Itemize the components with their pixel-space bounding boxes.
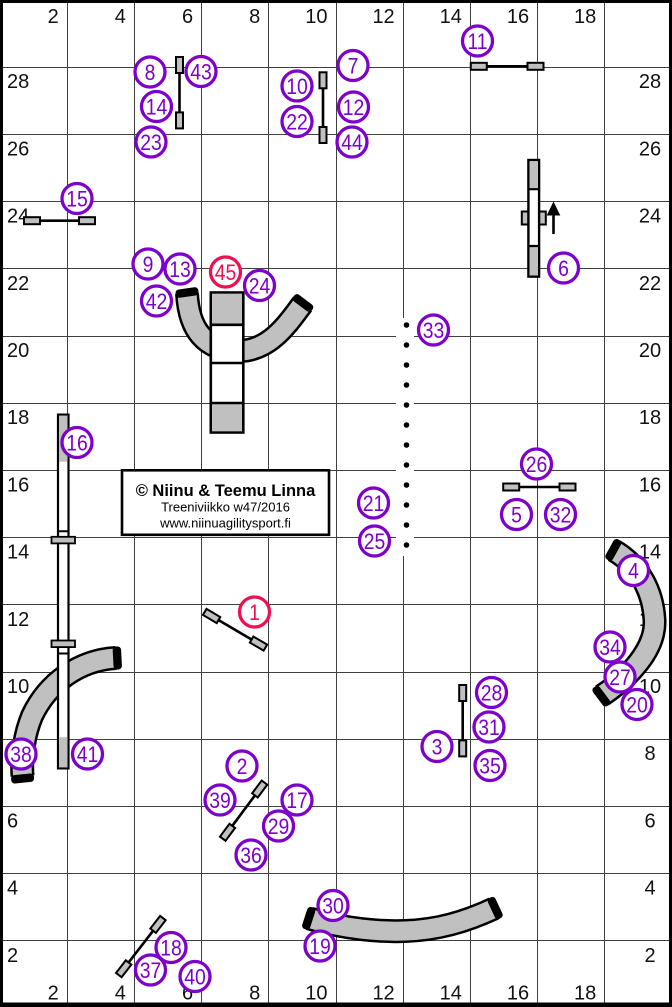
svg-text:4: 4 (115, 983, 126, 1005)
svg-text:9: 9 (143, 253, 154, 277)
svg-text:8: 8 (249, 6, 260, 28)
svg-text:3: 3 (432, 735, 443, 759)
svg-text:26: 26 (639, 138, 661, 160)
svg-text:34: 34 (599, 636, 621, 660)
svg-text:6: 6 (182, 6, 193, 28)
svg-text:22: 22 (286, 110, 308, 134)
svg-text:20: 20 (639, 340, 661, 362)
svg-text:11: 11 (467, 30, 487, 54)
svg-text:4: 4 (7, 878, 18, 900)
svg-text:17: 17 (286, 789, 308, 813)
svg-text:2: 2 (48, 6, 59, 28)
svg-text:28: 28 (639, 71, 661, 93)
svg-text:8: 8 (145, 61, 156, 85)
svg-text:www.niinuagilitysport.fi: www.niinuagilitysport.fi (159, 516, 291, 531)
svg-text:20: 20 (7, 340, 29, 362)
svg-text:10: 10 (7, 676, 29, 698)
svg-text:Treeniviikko w47/2016: Treeniviikko w47/2016 (161, 500, 290, 515)
svg-text:12: 12 (372, 6, 394, 28)
svg-text:32: 32 (550, 503, 572, 527)
svg-text:22: 22 (7, 273, 29, 295)
svg-text:14: 14 (440, 983, 462, 1005)
svg-text:10: 10 (286, 75, 308, 99)
svg-text:16: 16 (639, 474, 661, 496)
svg-text:2: 2 (644, 945, 655, 967)
svg-text:45: 45 (215, 261, 237, 285)
svg-text:16: 16 (7, 474, 29, 496)
svg-text:19: 19 (309, 935, 331, 959)
svg-text:18: 18 (574, 6, 596, 28)
svg-text:36: 36 (240, 844, 262, 868)
svg-text:16: 16 (66, 431, 88, 455)
svg-text:37: 37 (140, 959, 162, 983)
svg-text:6: 6 (7, 810, 18, 832)
svg-text:26: 26 (7, 138, 29, 160)
svg-text:40: 40 (184, 965, 206, 989)
svg-text:41: 41 (77, 743, 99, 767)
svg-text:24: 24 (639, 206, 661, 228)
svg-text:21: 21 (363, 492, 385, 516)
svg-text:13: 13 (169, 258, 191, 282)
svg-text:12: 12 (7, 609, 29, 631)
svg-text:42: 42 (146, 290, 168, 314)
svg-text:31: 31 (478, 716, 500, 740)
svg-text:4: 4 (628, 559, 639, 583)
svg-text:35: 35 (479, 754, 501, 778)
svg-text:16: 16 (507, 6, 529, 28)
svg-text:12: 12 (343, 96, 365, 120)
svg-text:44: 44 (341, 131, 363, 155)
svg-text:10: 10 (305, 983, 327, 1005)
svg-text:2: 2 (48, 983, 59, 1005)
svg-text:38: 38 (10, 743, 32, 767)
svg-text:8: 8 (249, 983, 260, 1005)
svg-text:18: 18 (639, 407, 661, 429)
svg-text:1: 1 (249, 601, 260, 625)
svg-text:4: 4 (115, 6, 126, 28)
svg-text:27: 27 (609, 666, 631, 690)
svg-text:6: 6 (558, 257, 569, 281)
svg-text:18: 18 (574, 983, 596, 1005)
svg-text:10: 10 (305, 6, 327, 28)
svg-text:24: 24 (249, 274, 271, 298)
svg-text:22: 22 (639, 273, 661, 295)
svg-text:15: 15 (66, 187, 88, 211)
svg-text:5: 5 (511, 503, 522, 527)
svg-text:33: 33 (423, 319, 445, 343)
svg-text:2: 2 (237, 755, 248, 779)
svg-text:2: 2 (7, 945, 18, 967)
svg-text:30: 30 (322, 894, 344, 918)
svg-text:28: 28 (7, 71, 29, 93)
svg-text:25: 25 (364, 530, 386, 554)
svg-text:28: 28 (481, 681, 503, 705)
svg-text:7: 7 (348, 54, 359, 78)
svg-text:20: 20 (626, 693, 648, 717)
svg-text:8: 8 (644, 743, 655, 765)
svg-text:43: 43 (190, 60, 212, 84)
svg-text:18: 18 (160, 936, 182, 960)
svg-text:18: 18 (7, 407, 29, 429)
svg-text:14: 14 (7, 542, 29, 564)
svg-text:26: 26 (526, 453, 548, 477)
svg-text:39: 39 (209, 789, 231, 813)
svg-text:23: 23 (140, 131, 162, 155)
svg-text:14: 14 (440, 6, 462, 28)
svg-text:29: 29 (268, 815, 290, 839)
svg-text:12: 12 (372, 983, 394, 1005)
svg-text:© Niinu & Teemu Linna: © Niinu & Teemu Linna (136, 482, 316, 500)
svg-text:14: 14 (146, 95, 168, 119)
svg-text:6: 6 (644, 810, 655, 832)
svg-text:16: 16 (507, 983, 529, 1005)
svg-text:4: 4 (644, 878, 655, 900)
